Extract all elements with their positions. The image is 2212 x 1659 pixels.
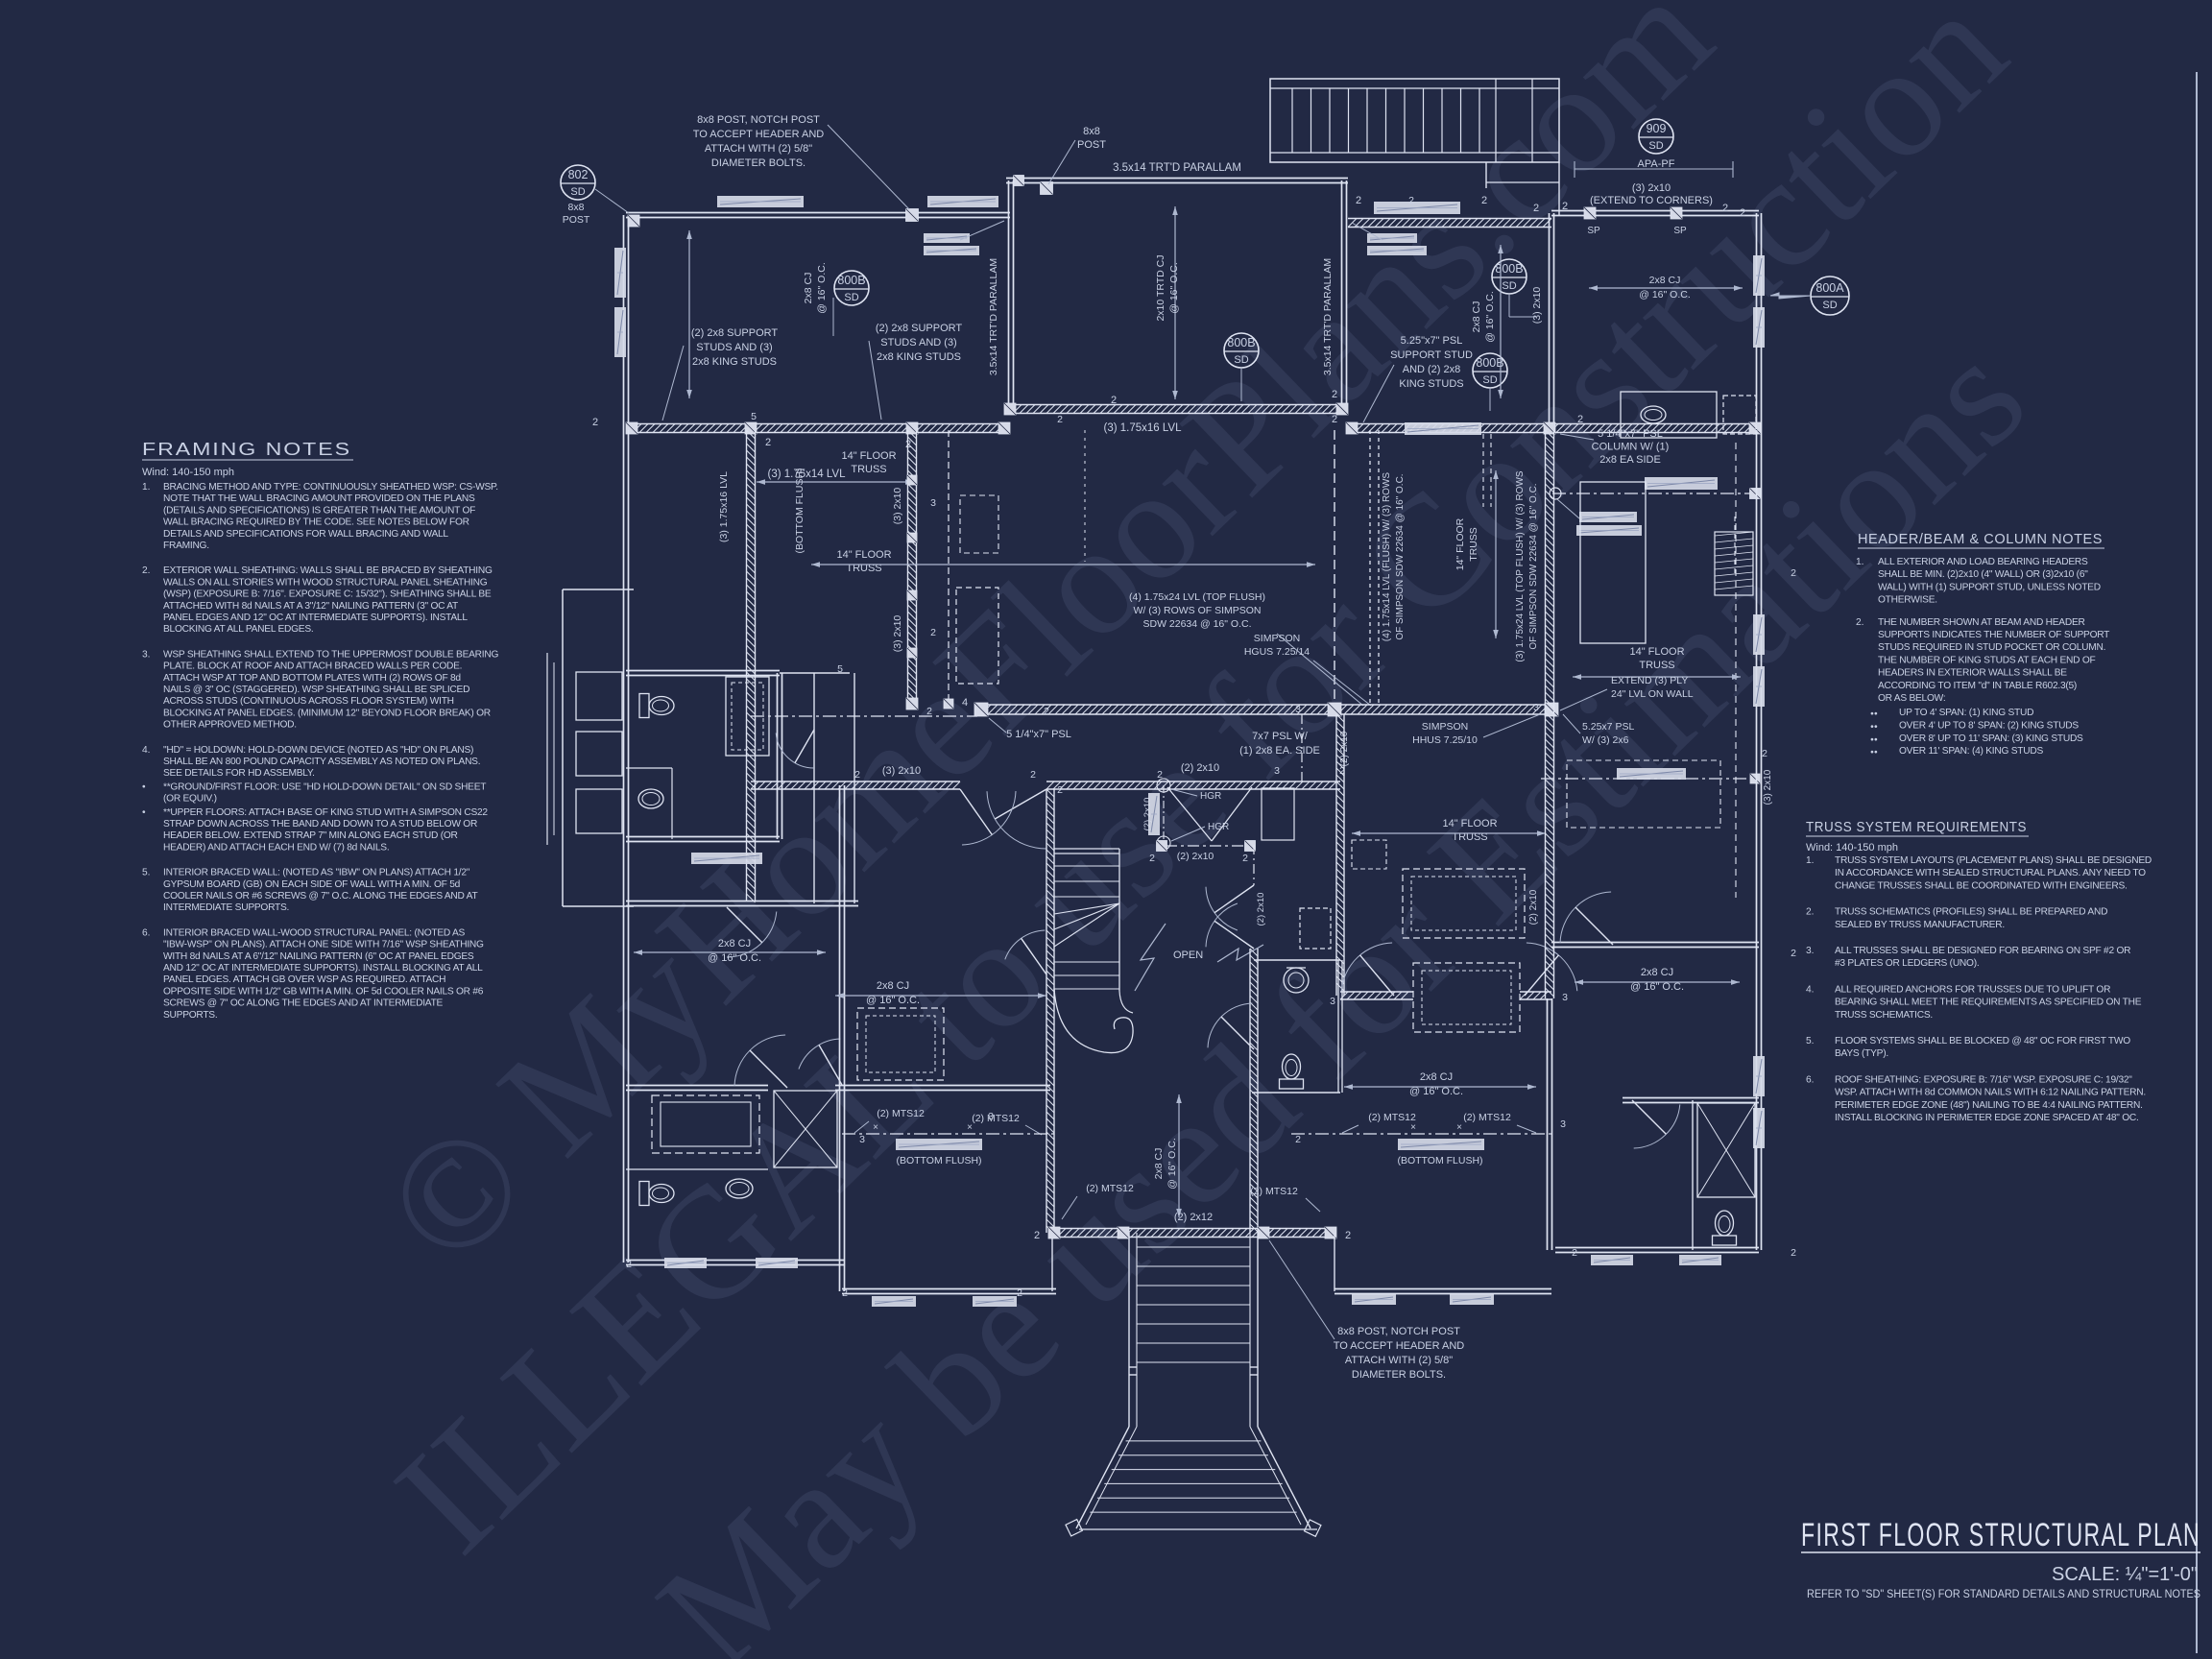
svg-text:OPEN: OPEN <box>1173 950 1203 961</box>
svg-text:ATTACHED WITH 8d NAILS AT A 3": ATTACHED WITH 8d NAILS AT A 3"/12" NAILI… <box>163 601 458 612</box>
svg-text:(2) 2x12: (2) 2x12 <box>1174 1212 1213 1223</box>
svg-text:INTERMEDIATE SUPPORTS.: INTERMEDIATE SUPPORTS. <box>163 902 289 913</box>
svg-text:2: 2 <box>626 1259 632 1270</box>
svg-text:FLOOR SYSTEMS SHALL BE BLOCKED: FLOOR SYSTEMS SHALL BE BLOCKED @ 48" OC … <box>1835 1036 2130 1046</box>
svg-text:(4) 1.75x14 LVL (FLUSH) W/ (3): (4) 1.75x14 LVL (FLUSH) W/ (3) ROWS <box>1382 472 1392 641</box>
svg-text:3: 3 <box>1562 992 1568 1003</box>
svg-text:HEADER BELOW. EXTEND STRAP 7": HEADER BELOW. EXTEND STRAP 7" MIN ALONG … <box>163 830 458 841</box>
svg-text:DETAILS AND SPECIFICATIONS FOR: DETAILS AND SPECIFICATIONS FOR WALL BRAC… <box>163 529 448 540</box>
svg-text:SCREWS @ 7" OC ALONG THE EDGES: SCREWS @ 7" OC ALONG THE EDGES AND AT IN… <box>163 998 444 1009</box>
svg-text:6.: 6. <box>1806 1074 1815 1085</box>
svg-text:24" LVL ON WALL: 24" LVL ON WALL <box>1611 688 1694 700</box>
svg-text:BAYS (TYP).: BAYS (TYP). <box>1835 1048 1888 1059</box>
svg-text:OVER 8' UP TO 11' SPAN: (3) KI: OVER 8' UP TO 11' SPAN: (3) KING STUDS <box>1899 733 2083 744</box>
svg-text:SD: SD <box>1648 140 1663 152</box>
svg-text:3.: 3. <box>142 649 151 660</box>
svg-text:(3) 2x10: (3) 2x10 <box>892 488 903 525</box>
svg-text:HEADERS IN EXTERIOR WALLS SHAL: HEADERS IN EXTERIOR WALLS SHALL BE <box>1878 668 2067 679</box>
svg-text:2: 2 <box>1057 784 1063 796</box>
svg-text:SUPPORTS.: SUPPORTS. <box>163 1010 217 1021</box>
svg-text:COOLER NAILS OR #6 SCREWS @ 7": COOLER NAILS OR #6 SCREWS @ 7" O.C. ALON… <box>163 891 477 902</box>
svg-text:●●: ●● <box>1870 749 1878 756</box>
svg-text:STUDS AND (3): STUDS AND (3) <box>880 337 956 349</box>
svg-text:SD: SD <box>1502 280 1516 292</box>
svg-text:TRUSS SCHEMATICS.: TRUSS SCHEMATICS. <box>1835 1010 1933 1021</box>
svg-text:STRAP DOWN ACROSS THE BAND AND: STRAP DOWN ACROSS THE BAND AND DOWN TO A… <box>163 819 477 829</box>
svg-text:2: 2 <box>1332 389 1337 400</box>
svg-text:"HD" = HOLDOWN: HOLD-DOWN DEVI: "HD" = HOLDOWN: HOLD-DOWN DEVICE (NOTED … <box>163 745 473 756</box>
svg-text:@ 16" O.C.: @ 16" O.C. <box>1630 981 1684 993</box>
svg-text:2x8 CJ: 2x8 CJ <box>1153 1148 1165 1180</box>
svg-text:14" FLOOR: 14" FLOOR <box>1442 818 1497 829</box>
svg-text:2x8 KING STUDS: 2x8 KING STUDS <box>692 356 777 368</box>
svg-text:REFER TO "SD" SHEET(S) FOR STA: REFER TO "SD" SHEET(S) FOR STANDARD DETA… <box>1807 1589 2200 1600</box>
svg-text:HEADER/BEAM & COLUMN NOTES: HEADER/BEAM & COLUMN NOTES <box>1858 531 2103 547</box>
svg-text:ROOF SHEATHING: EXPOSURE B: 7/: ROOF SHEATHING: EXPOSURE B: 7/16" WSP. E… <box>1835 1074 2132 1085</box>
svg-text:@ 16" O.C.: @ 16" O.C. <box>866 995 920 1006</box>
svg-text:(WSP) (EXPOSURE B: 7/16". EXPO: (WSP) (EXPOSURE B: 7/16". EXPOSURE C: 15… <box>163 589 492 600</box>
svg-text:2: 2 <box>842 1287 848 1299</box>
svg-text:800B: 800B <box>1476 356 1503 370</box>
svg-text:Wind: 140-150 mph: Wind: 140-150 mph <box>1806 842 1898 854</box>
svg-text:3: 3 <box>1274 765 1280 777</box>
svg-text:#3 PLATES OR LEDGERS (UNO).: #3 PLATES OR LEDGERS (UNO). <box>1835 958 1979 969</box>
svg-text:STUDS REQUIRED IN STUD POCKET: STUDS REQUIRED IN STUD POCKET OR COLUMN. <box>1878 642 2105 653</box>
svg-text:PANEL EDGES. ATTACH GB OVER WS: PANEL EDGES. ATTACH GB OVER WSP AS REQUI… <box>163 974 445 985</box>
svg-text:BEARING SHALL MEET THE REQUIR: BEARING SHALL MEET THE REQUIREMENTS AS S… <box>1835 998 2142 1008</box>
svg-text:ALL EXTERIOR AND LOAD BEARING: ALL EXTERIOR AND LOAD BEARING HEADERS <box>1878 557 2088 567</box>
svg-text:**GROUND/FIRST FLOOR: USE "HD: **GROUND/FIRST FLOOR: USE "HD HOLD-DOWN … <box>163 781 486 792</box>
svg-text:UP TO 4' SPAN: (1) KING STUD: UP TO 4' SPAN: (1) KING STUD <box>1899 708 2033 718</box>
svg-text:2: 2 <box>1332 414 1337 425</box>
svg-text:2: 2 <box>1572 1247 1577 1259</box>
svg-text:3.: 3. <box>1806 946 1815 956</box>
svg-text:•: • <box>142 807 146 818</box>
svg-text:W/ (3) 2x6: W/ (3) 2x6 <box>1582 734 1629 746</box>
svg-text:STUDS AND (3): STUDS AND (3) <box>696 342 772 353</box>
svg-text:WSP. ATTACH WITH 8d COMMON NAI: WSP. ATTACH WITH 8d COMMON NAILS WITH 6:… <box>1835 1088 2146 1098</box>
svg-text:×: × <box>967 1122 973 1133</box>
svg-text:2x8 CJ: 2x8 CJ <box>718 938 751 950</box>
svg-text:800B: 800B <box>1495 262 1523 276</box>
svg-text:•: • <box>142 781 146 792</box>
svg-text:6.: 6. <box>142 927 151 938</box>
svg-text:@ 16" O.C.: @ 16" O.C. <box>1639 289 1690 301</box>
svg-text:2: 2 <box>592 417 598 428</box>
svg-text:(3) 1.75x16 LVL: (3) 1.75x16 LVL <box>718 471 730 542</box>
svg-text:TRUSS: TRUSS <box>1468 527 1479 562</box>
svg-text:SEALED BY TRUSS MANUFACTURER.: SEALED BY TRUSS MANUFACTURER. <box>1835 920 2005 930</box>
svg-text:(2) 2x10: (2) 2x10 <box>1528 889 1539 925</box>
svg-text:ALL TRUSSES SHALL BE DESIGNED: ALL TRUSSES SHALL BE DESIGNED FOR BEARIN… <box>1835 946 2130 956</box>
svg-text:IN ACCORDANCE WITH SEALED STRU: IN ACCORDANCE WITH SEALED STRUCTURAL PLA… <box>1835 868 2146 878</box>
svg-text:14" FLOOR: 14" FLOOR <box>1455 517 1466 570</box>
svg-text:(1) 2x8 EA. SIDE: (1) 2x8 EA. SIDE <box>1239 745 1320 757</box>
svg-text:3.5x14 TRT'D PARALLAM: 3.5x14 TRT'D PARALLAM <box>1113 162 1241 174</box>
svg-text:2: 2 <box>1791 1247 1796 1259</box>
svg-text:×: × <box>873 1122 878 1133</box>
svg-text:2: 2 <box>1057 414 1063 425</box>
svg-text:2.: 2. <box>142 565 151 576</box>
svg-text:THE NUMBER OF KING STUDS AT EA: THE NUMBER OF KING STUDS AT EACH END OF <box>1878 655 2095 665</box>
svg-text:4.: 4. <box>142 745 151 756</box>
svg-text:8x8 POST, NOTCH POST: 8x8 POST, NOTCH POST <box>697 114 820 126</box>
svg-text:(2) MTS12: (2) MTS12 <box>972 1113 1020 1124</box>
svg-text:@ 16" O.C.: @ 16" O.C. <box>708 952 761 964</box>
svg-text:(OR EQUIV.): (OR EQUIV.) <box>163 794 217 805</box>
svg-text:2x8 CJ: 2x8 CJ <box>803 273 814 304</box>
svg-text:(3) 2x10: (3) 2x10 <box>892 615 903 653</box>
svg-text:3: 3 <box>930 497 936 509</box>
svg-text:(2) MTS12: (2) MTS12 <box>1368 1112 1416 1123</box>
svg-text:"IBW-WSP" ON PLANS). ATTACH ON: "IBW-WSP" ON PLANS). ATTACH ONE SIDE WIT… <box>163 940 484 950</box>
svg-text:2x10 TRTD CJ: 2x10 TRTD CJ <box>1155 254 1166 321</box>
svg-text:3: 3 <box>1330 996 1335 1007</box>
svg-text:14" FLOOR: 14" FLOOR <box>841 450 896 462</box>
svg-text:HGR: HGR <box>1200 791 1221 802</box>
svg-text:(2) 2x8 SUPPORT: (2) 2x8 SUPPORT <box>876 323 963 334</box>
svg-text:EXTERIOR WALL SHEATHING: WALLS: EXTERIOR WALL SHEATHING: WALLS SHALL BE … <box>163 565 493 576</box>
svg-text:WITH 8d NAILS AT A 6"/12" NAIL: WITH 8d NAILS AT A 6"/12" NAILING PATTER… <box>163 951 474 962</box>
svg-text:2: 2 <box>1044 706 1049 717</box>
svg-text:2x8 EA SIDE: 2x8 EA SIDE <box>1599 454 1661 466</box>
svg-text:ACCORDING TO ITEM "d" IN TABLE: ACCORDING TO ITEM "d" IN TABLE R602.3(5) <box>1878 681 2077 691</box>
svg-text:(3) 1.75x14 LVL: (3) 1.75x14 LVL <box>768 469 847 480</box>
svg-text:TRUSS SCHEMATICS (PROFILES) SH: TRUSS SCHEMATICS (PROFILES) SHALL BE PRE… <box>1835 907 2107 918</box>
svg-text:2: 2 <box>1149 853 1155 864</box>
svg-text:SUPPORTS INDICATES THE NUMBER: SUPPORTS INDICATES THE NUMBER OF SUPPORT <box>1878 630 2109 640</box>
svg-text:2: 2 <box>1562 201 1568 212</box>
svg-text:2: 2 <box>1577 414 1583 425</box>
svg-text:(3) 2x10: (3) 2x10 <box>1632 182 1671 194</box>
svg-text:2: 2 <box>1722 203 1728 214</box>
svg-text:OF SIMPSON SDW 22634 @ 16" O.C: OF SIMPSON SDW 22634 @ 16" O.C. <box>1395 473 1406 639</box>
svg-text:2: 2 <box>926 706 932 717</box>
svg-text:(3) 2x10: (3) 2x10 <box>1763 769 1773 805</box>
svg-text:ATTACH WSP AT TOP AND BOTTOM P: ATTACH WSP AT TOP AND BOTTOM PLATES WITH… <box>163 673 461 684</box>
svg-text:1.: 1. <box>1856 557 1864 567</box>
svg-text:2: 2 <box>1740 207 1745 219</box>
svg-text:5.25x7 PSL: 5.25x7 PSL <box>1582 721 1634 733</box>
svg-text:3.5x14 TRT'D PARALLAM: 3.5x14 TRT'D PARALLAM <box>988 258 999 375</box>
svg-text:APA-PF: APA-PF <box>1638 158 1675 170</box>
svg-text:SD: SD <box>844 292 858 303</box>
svg-text:3: 3 <box>1533 702 1539 713</box>
svg-text:800B: 800B <box>837 274 865 287</box>
svg-text:4: 4 <box>962 697 968 709</box>
svg-text:●●: ●● <box>1870 736 1878 743</box>
svg-text:(2) 2x8 SUPPORT: (2) 2x8 SUPPORT <box>691 327 779 339</box>
svg-text:2x8 CJ: 2x8 CJ <box>1471 301 1482 333</box>
svg-text:SD: SD <box>1234 354 1248 366</box>
svg-text:8x8 POST, NOTCH POST: 8x8 POST, NOTCH POST <box>1337 1326 1460 1337</box>
svg-text:SHALL BE MIN. (2)2x10 (4" WALL: SHALL BE MIN. (2)2x10 (4" WALL) OR (3)2x… <box>1878 569 2088 580</box>
svg-text:PERIMETER EDGE ZONE (48") NAIL: PERIMETER EDGE ZONE (48") NAILING TO BE … <box>1835 1100 2143 1111</box>
svg-text:SP: SP <box>1673 226 1687 236</box>
svg-text:DIAMETER BOLTS.: DIAMETER BOLTS. <box>1352 1369 1446 1381</box>
svg-text:INTERIOR BRACED WALL-WOOD STRU: INTERIOR BRACED WALL-WOOD STRUCTURAL PAN… <box>163 927 466 938</box>
svg-text:TRUSS SYSTEM REQUIREMENTS: TRUSS SYSTEM REQUIREMENTS <box>1806 819 2027 835</box>
svg-text:OTHERWISE.: OTHERWISE. <box>1878 595 1937 606</box>
svg-text:(2) 2x10: (2) 2x10 <box>1177 851 1214 862</box>
svg-text:OR AS BELOW:: OR AS BELOW: <box>1878 693 1945 704</box>
svg-text:DIAMETER BOLTS.: DIAMETER BOLTS. <box>711 157 805 169</box>
svg-text:2x8 CJ: 2x8 CJ <box>1641 967 1673 978</box>
svg-text:@ 16" O.C.: @ 16" O.C. <box>816 262 828 313</box>
svg-text:TRUSS SYSTEM LAYOUTS (PLACEMEN: TRUSS SYSTEM LAYOUTS (PLACEMENT PLANS) S… <box>1835 855 2152 866</box>
svg-text:1.: 1. <box>142 482 151 493</box>
svg-text:5.: 5. <box>142 868 151 878</box>
svg-text:AND (2) 2x8: AND (2) 2x8 <box>1403 364 1461 375</box>
svg-text:2: 2 <box>1242 853 1248 864</box>
svg-text:5 1/4"x7" PSL: 5 1/4"x7" PSL <box>1598 428 1663 440</box>
svg-text:SD: SD <box>570 186 585 198</box>
svg-text:SDW 22634 @ 16" O.C.: SDW 22634 @ 16" O.C. <box>1142 618 1251 630</box>
svg-text:SIMPSON: SIMPSON <box>1254 633 1300 644</box>
svg-text:SD: SD <box>1822 300 1837 311</box>
svg-text:8x8: 8x8 <box>568 202 585 213</box>
svg-text:POST: POST <box>1077 139 1106 151</box>
svg-text:OVER 4' UP TO 8' SPAN: (2) KIN: OVER 4' UP TO 8' SPAN: (2) KING STUDS <box>1899 721 2079 732</box>
svg-text:2x8 KING STUDS: 2x8 KING STUDS <box>877 351 961 363</box>
svg-text:×: × <box>1456 1122 1462 1133</box>
svg-text:OF SIMPSON SDW 22634 @ 16" O.C: OF SIMPSON SDW 22634 @ 16" O.C. <box>1528 483 1539 649</box>
svg-text:FRAMING NOTES: FRAMING NOTES <box>142 440 351 459</box>
svg-text:@ 16" O.C.: @ 16" O.C. <box>1409 1086 1463 1097</box>
svg-text:(3) 2x10: (3) 2x10 <box>882 765 921 777</box>
svg-text:1.: 1. <box>1806 855 1815 866</box>
svg-text:(3) 1.75x24 LVL (TOP FLUSH) W/: (3) 1.75x24 LVL (TOP FLUSH) W/ (3) ROWS <box>1515 470 1526 661</box>
svg-text:@ 16" O.C.: @ 16" O.C. <box>1166 1138 1178 1189</box>
svg-text:2.: 2. <box>1806 907 1815 918</box>
svg-text:2: 2 <box>1345 1230 1351 1241</box>
svg-text:5: 5 <box>751 411 757 422</box>
svg-text:7x7 PSL W/: 7x7 PSL W/ <box>1252 731 1309 742</box>
svg-text:909: 909 <box>1647 122 1667 135</box>
svg-text:SUPPORT STUD: SUPPORT STUD <box>1390 349 1473 361</box>
svg-text:INTERIOR BRACED WALL: (NOTED A: INTERIOR BRACED WALL: (NOTED AS "IBW" ON… <box>163 868 470 878</box>
svg-text:2: 2 <box>1111 395 1117 406</box>
svg-text:Wind: 140-150 mph: Wind: 140-150 mph <box>142 467 234 478</box>
svg-text:2: 2 <box>1034 1230 1040 1241</box>
svg-text:2: 2 <box>1791 948 1796 959</box>
svg-text:HGUS 7.25/14: HGUS 7.25/14 <box>1244 646 1310 658</box>
svg-text:WALL) WITH (1) SUPPORT STUD, U: WALL) WITH (1) SUPPORT STUD, UNLESS NOTE… <box>1878 582 2101 592</box>
svg-text:(EXTEND TO CORNERS): (EXTEND TO CORNERS) <box>1590 195 1713 206</box>
svg-text:**UPPER FLOORS: ATTACH BASE OF: **UPPER FLOORS: ATTACH BASE OF KING STUD… <box>163 807 488 818</box>
svg-text:CHANGE TRUSSES SHALL BE COORDI: CHANGE TRUSSES SHALL BE COORDINATED WITH… <box>1835 880 2128 891</box>
svg-text:(2) MTS12: (2) MTS12 <box>1086 1183 1134 1194</box>
svg-text:2: 2 <box>1533 203 1539 214</box>
svg-text:FIRST FLOOR STRUCTURAL PLAN: FIRST FLOOR STRUCTURAL PLAN <box>1801 1517 2200 1553</box>
svg-text:SP: SP <box>1587 226 1600 236</box>
svg-text:OVER 11' SPAN: (4) KING STUDS: OVER 11' SPAN: (4) KING STUDS <box>1899 746 2043 757</box>
svg-text:2: 2 <box>1295 1134 1301 1145</box>
svg-text:(3) 2x10: (3) 2x10 <box>1531 287 1543 325</box>
svg-text:SEE DETAILS FOR HD ASSEMBLY.: SEE DETAILS FOR HD ASSEMBLY. <box>163 768 315 779</box>
svg-text:800B: 800B <box>1227 336 1255 349</box>
svg-text:AND 12" OC AT INTERMEDIATE SUP: AND 12" OC AT INTERMEDIATE SUPPORTS). IN… <box>163 963 483 974</box>
svg-text:802: 802 <box>568 168 589 181</box>
svg-text:8x8: 8x8 <box>1083 126 1100 137</box>
svg-text:@ 16" O.C.: @ 16" O.C. <box>1168 262 1180 313</box>
svg-text:2: 2 <box>1030 769 1036 781</box>
svg-text:SIMPSON: SIMPSON <box>1422 721 1468 733</box>
svg-text:TO ACCEPT HEADER AND: TO ACCEPT HEADER AND <box>693 129 825 140</box>
svg-text:W/ (3) ROWS OF SIMPSON: W/ (3) ROWS OF SIMPSON <box>1134 605 1262 616</box>
svg-text:(BOTTOM FLUSH): (BOTTOM FLUSH) <box>794 468 805 553</box>
svg-text:3: 3 <box>859 1134 865 1145</box>
svg-text:OTHER APPROVED METHOD.: OTHER APPROVED METHOD. <box>163 720 297 731</box>
svg-text:POST: POST <box>563 214 590 226</box>
svg-text:SD: SD <box>1482 374 1497 386</box>
svg-text:ATTACH WITH (2) 5/8": ATTACH WITH (2) 5/8" <box>1345 1355 1453 1366</box>
svg-text:BLOCKING AT PANEL EDGES. (MINI: BLOCKING AT PANEL EDGES. (MINIMUM 12" BE… <box>163 708 491 718</box>
svg-text:2x8 CJ: 2x8 CJ <box>1420 1071 1453 1083</box>
svg-text:WSP SHEATHING SHALL EXTEND TO: WSP SHEATHING SHALL EXTEND TO THE UPPERM… <box>163 649 498 660</box>
svg-text:(2) MTS12: (2) MTS12 <box>1250 1186 1298 1197</box>
svg-text:SHALL BE AN 800 POUND CAPACITY: SHALL BE AN 800 POUND CAPACITY ASSEMBLY … <box>163 757 480 767</box>
svg-text:3: 3 <box>1295 704 1301 715</box>
svg-text:(2) MTS12: (2) MTS12 <box>1463 1112 1511 1123</box>
svg-text:5.: 5. <box>1806 1036 1815 1046</box>
svg-text:(DETAILS AND SPECIFICATIONS) I: (DETAILS AND SPECIFICATIONS) IS GREATER … <box>163 505 475 516</box>
svg-text:COLUMN W/ (1): COLUMN W/ (1) <box>1592 442 1670 453</box>
svg-text:2: 2 <box>930 627 936 638</box>
svg-text:HHUS 7.25/10: HHUS 7.25/10 <box>1412 734 1478 746</box>
svg-text:INSTALL BLOCKING IN PERIMETER: INSTALL BLOCKING IN PERIMETER EDGE ZONE … <box>1835 1113 2139 1123</box>
svg-text:ATTACH WITH (2) 5/8": ATTACH WITH (2) 5/8" <box>705 143 812 155</box>
svg-text:●●: ●● <box>1870 724 1878 731</box>
svg-text:PANEL EDGES AND 12" OC AT INTE: PANEL EDGES AND 12" OC AT INTERMEDIATE S… <box>163 613 468 623</box>
svg-text:KING STUDS: KING STUDS <box>1399 378 1463 390</box>
svg-text:2: 2 <box>854 769 860 781</box>
svg-text:2x8 CJ: 2x8 CJ <box>877 980 909 992</box>
svg-text:×: × <box>1410 1122 1416 1133</box>
svg-text:(2) 2x10: (2) 2x10 <box>1256 893 1266 926</box>
svg-text:BRACING METHOD AND TYPE: CONTI: BRACING METHOD AND TYPE: CONTINUOUSLY SH… <box>163 482 498 493</box>
svg-text:2: 2 <box>765 437 771 448</box>
svg-text:(2) MTS12: (2) MTS12 <box>877 1108 925 1119</box>
svg-text:3: 3 <box>1560 1118 1566 1130</box>
svg-text:5: 5 <box>837 663 843 675</box>
svg-text:2: 2 <box>1356 195 1361 206</box>
svg-text:(BOTTOM FLUSH): (BOTTOM FLUSH) <box>1397 1155 1482 1166</box>
svg-text:PLATE. BLOCK AT ROOF AND ATTAC: PLATE. BLOCK AT ROOF AND ATTACH BRACED W… <box>163 661 462 672</box>
svg-text:2: 2 <box>1017 1287 1022 1299</box>
svg-text:2: 2 <box>1762 748 1767 759</box>
svg-text:TRUSS: TRUSS <box>1639 660 1674 671</box>
svg-text:THE NUMBER SHOWN AT BEAM AND H: THE NUMBER SHOWN AT BEAM AND HEADER <box>1878 617 2085 628</box>
svg-text:TO ACCEPT HEADER AND: TO ACCEPT HEADER AND <box>1334 1340 1465 1352</box>
svg-text:ACROSS STUDS (CONTINUOUS ACROS: ACROSS STUDS (CONTINUOUS ACROSS FLOOR SY… <box>163 696 454 707</box>
svg-text:4.: 4. <box>1806 984 1815 995</box>
svg-text:(BOTTOM FLUSH): (BOTTOM FLUSH) <box>896 1155 981 1166</box>
svg-text:EXTEND (3) PLY: EXTEND (3) PLY <box>1611 675 1688 686</box>
svg-text:NAILS @ 3" OC (STAGGERED). WS: NAILS @ 3" OC (STAGGERED). WSP SHEATHING… <box>163 685 469 695</box>
svg-text:ALL REQUIRED ANCHORS FOR TRUSS: ALL REQUIRED ANCHORS FOR TRUSSES DUE TO … <box>1835 984 2110 995</box>
svg-text:@ 16" O.C.: @ 16" O.C. <box>1484 291 1496 342</box>
svg-text:800A: 800A <box>1815 281 1844 295</box>
svg-text:HGR: HGR <box>1208 822 1229 832</box>
svg-text:3: 3 <box>988 1111 994 1122</box>
svg-text:(4) 1.75x24 LVL (TOP FLUSH): (4) 1.75x24 LVL (TOP FLUSH) <box>1129 591 1265 603</box>
svg-text:FRAMING.: FRAMING. <box>163 541 209 551</box>
svg-text:WALL BRACING REQUIRED BY THE C: WALL BRACING REQUIRED BY THE CODE. SEE N… <box>163 517 469 528</box>
svg-text:3.5x14 TRT'D PARALLAM: 3.5x14 TRT'D PARALLAM <box>1322 258 1334 375</box>
svg-text:●●: ●● <box>1870 710 1878 717</box>
svg-text:HEADER) AND ATTACH EACH END W/: HEADER) AND ATTACH EACH END W/ (7) 8d NA… <box>163 842 389 853</box>
svg-text:GYPSUM BOARD (GB) ON EACH SIDE: GYPSUM BOARD (GB) ON EACH SIDE OF WALL W… <box>163 879 461 890</box>
svg-text:TRUSS: TRUSS <box>851 464 886 475</box>
svg-text:OPPOSITE SIDE WITH 1/2" GB WIT: OPPOSITE SIDE WITH 1/2" GB WITH A MIN. O… <box>163 986 484 997</box>
svg-text:NOTE THAT THE WALL BRACING AMO: NOTE THAT THE WALL BRACING AMOUNT PROVID… <box>163 493 475 504</box>
svg-text:(2) 2x10: (2) 2x10 <box>1181 762 1219 774</box>
svg-text:2x8 CJ: 2x8 CJ <box>1649 275 1681 286</box>
svg-text:14" FLOOR: 14" FLOOR <box>836 549 891 561</box>
svg-text:5.25"x7" PSL: 5.25"x7" PSL <box>1401 335 1463 347</box>
svg-text:(3) 1.75x16 LVL: (3) 1.75x16 LVL <box>1104 422 1183 434</box>
svg-text:BLOCKING AT ALL PANEL EDGES.: BLOCKING AT ALL PANEL EDGES. <box>163 624 313 635</box>
svg-text:14" FLOOR: 14" FLOOR <box>1629 646 1684 658</box>
svg-text:2: 2 <box>1408 195 1414 206</box>
svg-text:2.: 2. <box>1856 617 1864 628</box>
svg-text:WALLS ON ALL STORIES WITH WOOD: WALLS ON ALL STORIES WITH WOOD STRUCTURA… <box>163 577 488 588</box>
svg-text:2: 2 <box>1481 195 1487 206</box>
svg-text:2: 2 <box>1791 567 1796 579</box>
svg-text:5 1/4"x7" PSL: 5 1/4"x7" PSL <box>1006 729 1071 740</box>
svg-text:SCALE: ¼"=1'-0": SCALE: ¼"=1'-0" <box>2052 1564 2198 1585</box>
